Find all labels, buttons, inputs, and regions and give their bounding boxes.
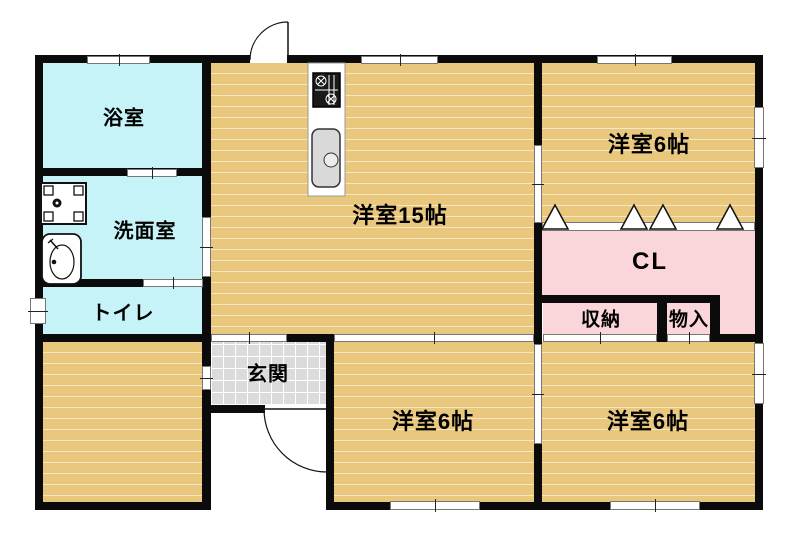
label-living: 洋室15帖: [352, 198, 447, 230]
closet-track: [542, 222, 755, 231]
window-tick: [752, 138, 766, 139]
label-closet-cl: CL: [632, 248, 668, 276]
door-opening-tick: [600, 332, 601, 344]
door-opening-tick: [173, 277, 174, 289]
door-opening-tick: [200, 378, 213, 379]
label-toilet: トイレ: [92, 297, 155, 326]
door-opening-tick: [200, 247, 213, 248]
label-bedroom-ne: 洋室6帖: [608, 127, 690, 159]
wall-segment: [326, 334, 334, 510]
wall-segment: [35, 502, 211, 510]
floor-plan: 浴室 洗面室 トイレ 玄関 洋室15帖 洋室6帖 洋室6帖 洋室6帖 CL 収納…: [0, 0, 800, 533]
label-bath: 浴室: [103, 102, 145, 131]
wall-segment: [657, 303, 667, 342]
window-tick: [435, 499, 436, 512]
wall-segment: [35, 168, 211, 176]
door-opening-tick: [689, 332, 690, 344]
door-opening-tick: [532, 184, 544, 185]
door-opening: [250, 55, 287, 63]
window-tick: [655, 499, 656, 512]
door-opening-tick: [532, 394, 544, 395]
room-closet-cl-extension: [720, 295, 755, 334]
door-opening-tick: [434, 332, 435, 344]
entrance-porch: [211, 413, 326, 533]
label-cabinet: 物入: [669, 305, 709, 332]
room-hallway: [43, 342, 202, 502]
wall-segment: [534, 63, 542, 145]
wall-segment: [534, 295, 720, 303]
door-opening-tick: [152, 167, 153, 179]
wall-segment: [708, 334, 763, 342]
label-bedroom-sw: 洋室6帖: [392, 404, 474, 436]
door-opening-tick: [249, 332, 250, 344]
wall-segment: [287, 334, 334, 342]
window-tick: [635, 54, 636, 66]
label-entrance: 玄関: [247, 358, 289, 387]
label-storage: 収納: [581, 305, 621, 332]
window-tick: [752, 374, 766, 375]
wall-segment: [203, 405, 265, 413]
label-washroom: 洗面室: [114, 215, 177, 244]
wall-segment: [534, 223, 542, 344]
window-tick: [119, 54, 120, 66]
window-tick: [28, 311, 48, 312]
label-bedroom-se: 洋室6帖: [607, 404, 689, 436]
wall-segment: [534, 444, 542, 502]
wall-segment: [35, 334, 211, 342]
window-tick: [400, 54, 401, 66]
